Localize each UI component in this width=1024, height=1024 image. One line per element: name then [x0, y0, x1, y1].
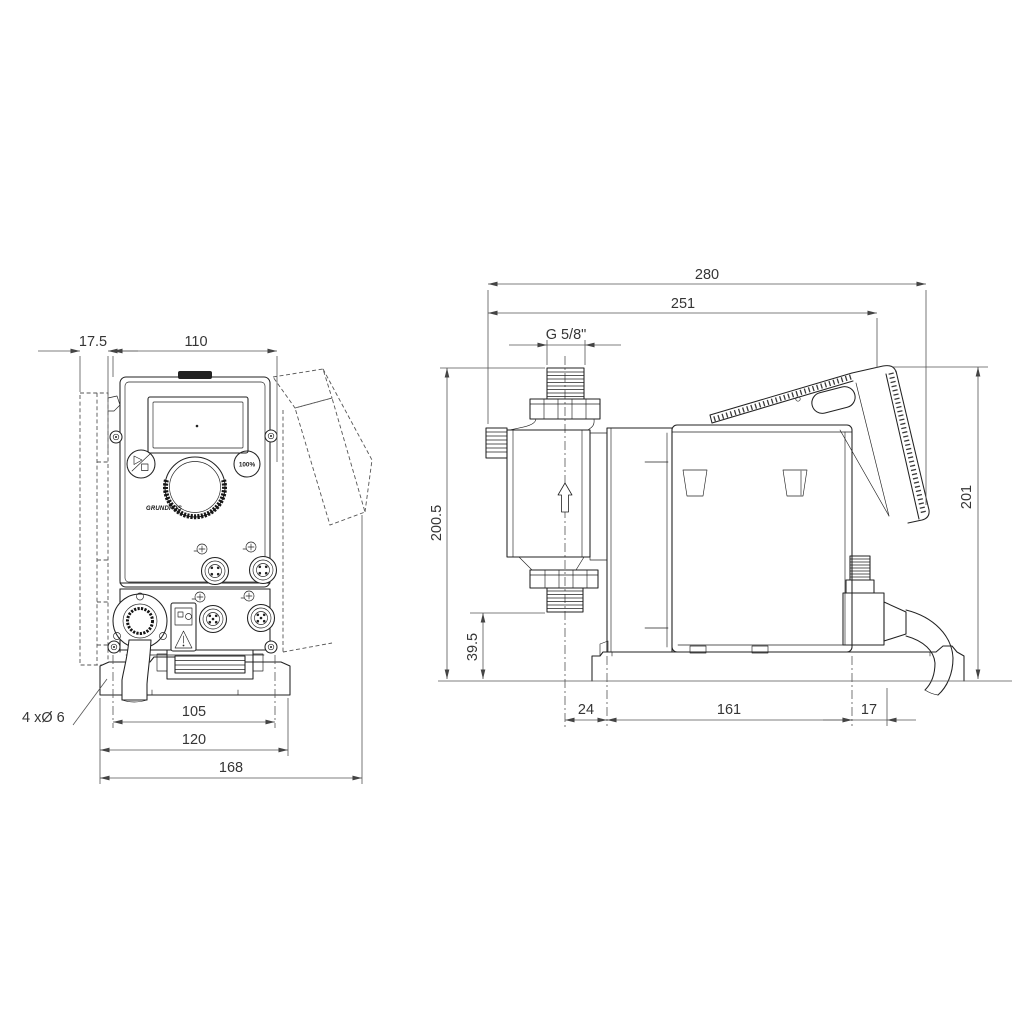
front-view: 100% GRUNDFOS — [22, 334, 372, 784]
mounting-holes-label: 4 xØ 6 — [22, 710, 65, 726]
side-control-panel — [710, 366, 929, 523]
dim-label-thread: G 5/8" — [546, 327, 587, 343]
outlet-thread — [547, 368, 584, 399]
port-icon — [241, 591, 254, 601]
wheel-slot — [810, 384, 858, 415]
flow-direction-arrow — [558, 483, 572, 512]
dim-label-height-conn: 200.5 — [429, 505, 445, 541]
bracket-hook — [108, 396, 120, 411]
note-mounting-holes: 4 xØ 6 — [22, 679, 107, 726]
head-backplate — [590, 433, 607, 560]
strain-relief-cone — [884, 602, 906, 641]
dim-24: 24 — [565, 702, 607, 720]
side-cable-gland — [843, 556, 953, 695]
display-dot — [196, 425, 199, 428]
dim-label-holes: 105 — [182, 704, 206, 720]
drawing-page: 100% GRUNDFOS — [0, 0, 1024, 1024]
dim-label-panel-depth: 251 — [671, 296, 695, 312]
screw — [265, 641, 277, 653]
dim-label-height-valve: 39.5 — [465, 633, 481, 661]
dim-17: 17 — [823, 688, 916, 726]
dim-label-rear-off: 17 — [861, 702, 877, 718]
side-base-plate — [592, 641, 964, 681]
screw — [108, 641, 120, 653]
dim-label-height: 201 — [959, 485, 975, 509]
dim-label-base: 120 — [182, 732, 206, 748]
top-clip — [178, 371, 212, 379]
vent-valve-knob — [486, 428, 507, 458]
dim-105: 105 — [113, 704, 275, 722]
dim-label-front-off: 24 — [578, 702, 594, 718]
connector-1 — [202, 558, 229, 585]
dim-label-offset: 17.5 — [79, 334, 107, 350]
dim-label-depth: 280 — [695, 267, 719, 283]
percent-label: 100% — [239, 462, 256, 469]
screw — [265, 430, 277, 442]
pump-dimensional-drawing: 100% GRUNDFOS — [0, 0, 1024, 1024]
dim-200-5: 200.5 — [429, 368, 545, 679]
dim-label-width: 110 — [184, 334, 207, 350]
dim-label-holes-side: 161 — [717, 702, 741, 718]
connector-4 — [248, 605, 275, 632]
side-dosing-head — [486, 368, 607, 612]
dim-39-5: 39.5 — [465, 613, 545, 679]
connector-2 — [250, 557, 277, 584]
brand-logo: GRUNDFOS — [146, 506, 182, 512]
front-warning-label — [171, 603, 196, 651]
side-pump-body — [607, 425, 852, 653]
port-icon — [192, 592, 205, 602]
dim-161: 161 — [607, 702, 852, 720]
head-body — [507, 430, 590, 557]
dim-label-overall: 168 — [219, 760, 243, 776]
screw — [110, 431, 122, 443]
body-tab — [683, 470, 707, 496]
side-view: 280 251 G 5/8" 200.5 39.5 201 — [429, 267, 1012, 728]
power-cable — [122, 640, 151, 700]
connector-3 — [200, 606, 227, 633]
body-tab — [783, 470, 807, 496]
front-panel-phantom — [273, 369, 372, 652]
inlet-union-nut — [530, 570, 598, 588]
dim-201: 201 — [893, 367, 988, 679]
